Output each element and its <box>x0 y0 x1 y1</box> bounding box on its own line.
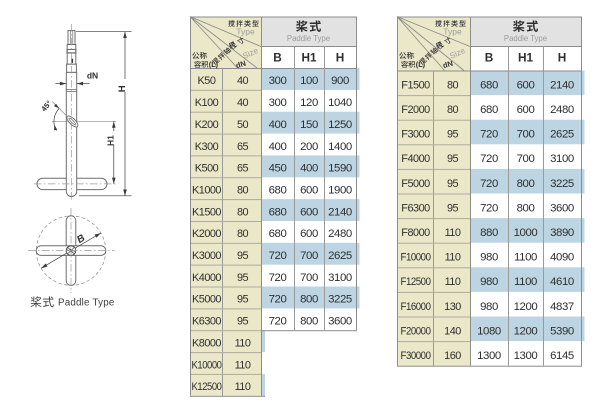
svg-text:800: 800 <box>517 202 535 214</box>
svg-text:3100: 3100 <box>550 153 574 165</box>
svg-text:110: 110 <box>235 337 251 349</box>
svg-text:1100: 1100 <box>514 252 537 264</box>
svg-text:600: 600 <box>517 79 535 91</box>
svg-text:2625: 2625 <box>328 250 352 262</box>
svg-text:300: 300 <box>269 75 287 87</box>
svg-text:2140: 2140 <box>550 79 574 91</box>
svg-text:95: 95 <box>447 202 459 214</box>
svg-text:80: 80 <box>237 228 249 240</box>
svg-text:1300: 1300 <box>514 350 538 362</box>
svg-text:65: 65 <box>237 163 249 175</box>
svg-text:F2000: F2000 <box>401 104 430 116</box>
svg-text:110: 110 <box>445 252 461 264</box>
svg-text:1590: 1590 <box>328 163 352 175</box>
svg-text:400: 400 <box>300 163 318 175</box>
svg-text:3225: 3225 <box>550 178 574 190</box>
svg-text:2140: 2140 <box>328 206 352 218</box>
svg-text:(L): (L) <box>416 60 426 69</box>
svg-text:800: 800 <box>517 178 535 190</box>
svg-text:600: 600 <box>300 206 318 218</box>
svg-text:1040: 1040 <box>328 97 352 109</box>
svg-text:1080: 1080 <box>477 325 501 337</box>
svg-text:700: 700 <box>517 153 535 165</box>
svg-text:2480: 2480 <box>550 104 574 116</box>
svg-text:450: 450 <box>269 163 287 175</box>
svg-text:K200: K200 <box>195 119 219 131</box>
svg-text:F6300: F6300 <box>401 202 430 214</box>
svg-text:H: H <box>558 51 567 65</box>
svg-text:95: 95 <box>237 316 249 328</box>
svg-text:120: 120 <box>300 97 318 109</box>
svg-text:B: B <box>273 51 282 65</box>
svg-text:K3000: K3000 <box>192 250 221 262</box>
svg-text:K6300: K6300 <box>192 316 221 328</box>
svg-text:400: 400 <box>269 141 287 153</box>
svg-text:Type: Type <box>236 27 255 37</box>
svg-text:2625: 2625 <box>550 129 574 141</box>
svg-text:1300: 1300 <box>477 350 501 362</box>
svg-text:1200: 1200 <box>514 301 538 313</box>
svg-text:980: 980 <box>480 301 498 313</box>
svg-text:K5000: K5000 <box>192 294 221 306</box>
svg-text:95: 95 <box>447 178 459 190</box>
svg-text:3600: 3600 <box>328 316 352 328</box>
svg-text:K4000: K4000 <box>192 272 221 284</box>
svg-text:95: 95 <box>447 153 459 165</box>
svg-text:K8000: K8000 <box>192 337 221 349</box>
svg-text:K10000: K10000 <box>192 359 222 371</box>
svg-text:4610: 4610 <box>550 276 574 288</box>
svg-text:Paddle Type: Paddle Type <box>287 34 330 43</box>
svg-text:F5000: F5000 <box>401 178 430 190</box>
svg-text:680: 680 <box>269 228 287 240</box>
svg-text:980: 980 <box>480 276 498 288</box>
svg-text:600: 600 <box>300 185 318 197</box>
svg-text:1400: 1400 <box>328 141 352 153</box>
svg-text:dN: dN <box>87 70 98 80</box>
svg-text:300: 300 <box>269 97 287 109</box>
svg-text:700: 700 <box>517 129 535 141</box>
svg-text:(L): (L) <box>209 60 219 69</box>
svg-text:1250: 1250 <box>328 119 352 131</box>
svg-text:H1: H1 <box>106 135 116 146</box>
svg-text:110: 110 <box>445 227 461 239</box>
svg-text:50: 50 <box>237 119 249 131</box>
svg-text:680: 680 <box>480 104 498 116</box>
svg-text:110: 110 <box>235 381 251 393</box>
svg-text:95: 95 <box>447 129 459 141</box>
svg-text:F10000: F10000 <box>401 252 431 264</box>
svg-text:680: 680 <box>269 185 287 197</box>
svg-text:720: 720 <box>480 129 498 141</box>
svg-text:H1: H1 <box>518 51 534 65</box>
svg-text:600: 600 <box>300 228 318 240</box>
svg-text:K1500: K1500 <box>192 206 221 218</box>
svg-text:720: 720 <box>269 316 287 328</box>
svg-text:3100: 3100 <box>328 272 352 284</box>
svg-text:110: 110 <box>235 359 251 371</box>
svg-text:K300: K300 <box>195 141 219 153</box>
svg-text:1900: 1900 <box>328 185 352 197</box>
svg-text:F20000: F20000 <box>401 325 431 337</box>
svg-text:980: 980 <box>480 252 498 264</box>
svg-text:F1500: F1500 <box>401 79 430 91</box>
svg-text:140: 140 <box>444 325 461 337</box>
svg-text:Type: Type <box>443 27 462 37</box>
svg-text:F16000: F16000 <box>401 301 431 313</box>
svg-text:80: 80 <box>447 104 459 116</box>
svg-text:K1000: K1000 <box>192 185 221 197</box>
svg-text:Paddle Type: Paddle Type <box>58 298 115 309</box>
svg-text:680: 680 <box>480 79 498 91</box>
svg-text:4090: 4090 <box>550 252 574 264</box>
svg-text:95: 95 <box>237 294 249 306</box>
svg-text:80: 80 <box>237 185 249 197</box>
svg-text:700: 700 <box>300 272 318 284</box>
svg-text:K12500: K12500 <box>192 381 222 393</box>
svg-text:720: 720 <box>480 153 498 165</box>
svg-text:700: 700 <box>300 250 318 262</box>
svg-text:40: 40 <box>237 75 249 87</box>
svg-text:150: 150 <box>300 119 318 131</box>
svg-text:H1: H1 <box>301 51 317 65</box>
svg-text:100: 100 <box>300 75 318 87</box>
svg-text:F30000: F30000 <box>401 350 431 362</box>
svg-text:680: 680 <box>269 206 287 218</box>
svg-text:2480: 2480 <box>328 228 352 240</box>
svg-text:720: 720 <box>269 294 287 306</box>
svg-text:K100: K100 <box>195 97 219 109</box>
svg-text:720: 720 <box>269 250 287 262</box>
svg-text:K500: K500 <box>195 163 219 175</box>
svg-text:800: 800 <box>300 294 318 306</box>
svg-text:1200: 1200 <box>514 325 538 337</box>
svg-text:F4000: F4000 <box>401 153 430 165</box>
svg-text:1100: 1100 <box>514 276 537 288</box>
svg-text:H: H <box>336 51 345 65</box>
svg-text:3890: 3890 <box>550 227 574 239</box>
svg-text:3600: 3600 <box>550 202 574 214</box>
svg-text:K2000: K2000 <box>192 228 221 240</box>
svg-text:95: 95 <box>237 272 249 284</box>
svg-text:95: 95 <box>237 250 249 262</box>
svg-text:B: B <box>485 51 494 65</box>
svg-text:K50: K50 <box>198 75 216 87</box>
svg-text:800: 800 <box>300 316 318 328</box>
svg-text:65: 65 <box>237 141 249 153</box>
svg-text:160: 160 <box>444 350 461 362</box>
svg-text:6145: 6145 <box>550 350 574 362</box>
svg-text:600: 600 <box>517 104 535 116</box>
svg-text:110: 110 <box>445 276 461 288</box>
svg-text:3225: 3225 <box>328 294 352 306</box>
svg-text:5390: 5390 <box>550 325 574 337</box>
svg-text:4837: 4837 <box>550 301 574 313</box>
svg-text:400: 400 <box>269 119 287 131</box>
svg-text:F3000: F3000 <box>401 129 430 141</box>
svg-text:900: 900 <box>331 75 349 87</box>
svg-text:Paddle Type: Paddle Type <box>504 34 547 43</box>
svg-text:H: H <box>117 85 128 92</box>
svg-text:130: 130 <box>444 301 461 313</box>
svg-text:80: 80 <box>447 79 459 91</box>
svg-text:80: 80 <box>237 206 249 218</box>
svg-text:F12500: F12500 <box>401 276 431 288</box>
svg-text:720: 720 <box>480 178 498 190</box>
svg-text:720: 720 <box>480 202 498 214</box>
svg-text:F8000: F8000 <box>401 227 430 239</box>
svg-text:880: 880 <box>480 227 498 239</box>
svg-text:200: 200 <box>300 141 318 153</box>
svg-text:1000: 1000 <box>514 227 538 239</box>
svg-text:720: 720 <box>269 272 287 284</box>
svg-text:40: 40 <box>237 97 249 109</box>
